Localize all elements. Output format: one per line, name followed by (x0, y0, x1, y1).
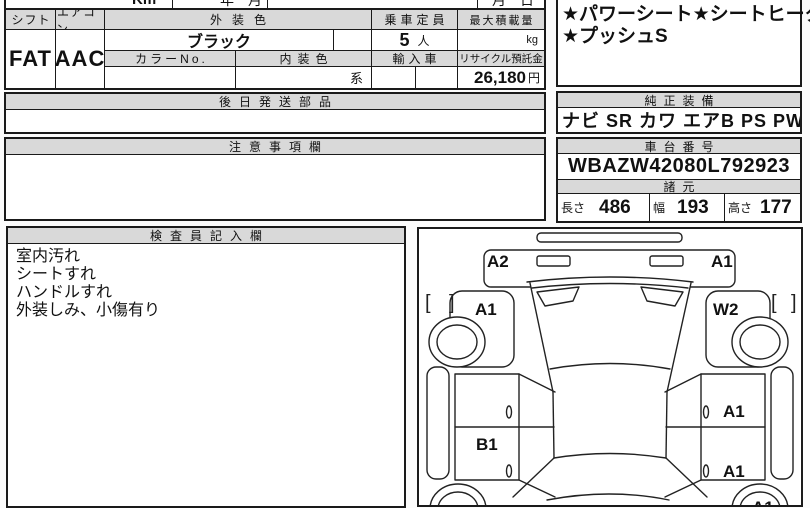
damage-label-wheel-front-right: A1 (752, 498, 774, 505)
damage-label-rear-right: A1 (711, 252, 733, 271)
bracket-icon: ] (449, 292, 455, 314)
recycle-fee-value-cell: 26,180 円 (458, 67, 544, 88)
bracket-icon: [ (771, 292, 777, 314)
length-cell: 長さ 486 (558, 194, 650, 221)
bracket-icon: ] (791, 292, 797, 314)
capacity-value: 5 (399, 30, 409, 51)
damage-diagram-section: [ ] [ ] A2 A1 A1 W2 A1 B1 A1 A1 (417, 227, 803, 507)
damage-label-rear-left: A2 (487, 252, 509, 271)
import-car-header: 輸入車 (372, 51, 458, 67)
side-sill-left (427, 367, 449, 479)
inspector-section: 検査員記入欄 室内汚れ シートすれ ハンドルすれ 外装しみ、小傷有り (6, 226, 406, 508)
top-strip-divider (267, 0, 268, 8)
sales-point: ★パワーシート★シートヒーター (562, 4, 796, 26)
notes-header: 注意事項欄 (6, 139, 544, 155)
equipment-section: 純正装備 ナビ SR カワ エアB PS PW (556, 91, 802, 134)
recycle-fee-value: 26,180 (474, 68, 526, 88)
notes-section: 注意事項欄 (4, 137, 546, 221)
roof-side-left (553, 392, 554, 458)
chassis-header: 車台番号 (558, 139, 800, 154)
inspector-note: 外装しみ、小傷有り (16, 302, 396, 320)
length-value: 486 (599, 197, 631, 219)
width-cell: 幅 193 (650, 194, 725, 221)
top-strip: Km 年 月 月 日 (4, 0, 546, 8)
height-cell: 高さ 177 (725, 194, 800, 221)
import-car-cell-2 (416, 67, 458, 88)
capacity-header: 乗車定員 (372, 10, 458, 30)
max-load-value-cell: kg (458, 30, 544, 51)
side-sill-right (771, 367, 793, 479)
chassis-number: WBAZW42080L792923 (558, 154, 800, 180)
height-label: 高さ (728, 199, 752, 216)
shift-value: FAT (6, 30, 56, 88)
door-handle (704, 406, 709, 418)
inspector-header: 検査員記入欄 (8, 228, 404, 244)
damage-label-door-right-rear: A1 (723, 402, 745, 421)
max-load-unit: kg (526, 34, 538, 46)
notes-body (6, 155, 544, 219)
import-car-cell-1 (372, 67, 416, 88)
door-handle (704, 465, 709, 477)
capacity-unit: 人 (418, 32, 430, 49)
top-strip-divider (477, 0, 478, 8)
month-fragment: 月 (248, 0, 262, 8)
interior-color-header: 内装色 (236, 51, 372, 67)
color-no-header: カラーNo. (105, 51, 236, 67)
day-fragment: 日 (520, 0, 534, 8)
aircon-value: AAC (56, 30, 105, 88)
inspector-note: ハンドルすれ (16, 284, 396, 302)
car-damage-diagram: [ ] [ ] A2 A1 A1 W2 A1 B1 A1 A1 (419, 229, 801, 505)
shift-header: シフト (6, 10, 56, 30)
recycle-fee-header: リサイクル預託金 (458, 51, 544, 67)
inspector-body: 室内汚れ シートすれ ハンドルすれ 外装しみ、小傷有り (8, 244, 404, 504)
door-handle (507, 465, 512, 477)
odometer-unit-fragment: Km (132, 0, 156, 8)
rear-light-left (537, 256, 570, 266)
top-strip-divider (172, 0, 173, 8)
sales-points-body: ★パワーシート★シートヒーター ★プッシュS (558, 2, 800, 50)
width-value: 193 (677, 197, 709, 219)
later-parts-body (6, 110, 544, 132)
damage-label-door-left-front: B1 (476, 435, 498, 454)
height-value: 177 (760, 197, 792, 219)
interior-color-value-cell: 系 (236, 67, 372, 88)
max-load-header: 最大積載量 (458, 10, 544, 30)
year-fragment: 年 (220, 0, 234, 8)
equipment-value: ナビ SR カワ エアB PS PW (558, 108, 800, 132)
car-body (513, 278, 707, 506)
wheel-front-left (430, 484, 486, 505)
inspector-note: 室内汚れ (16, 248, 396, 266)
dimensions-header: 諸元 (558, 180, 800, 194)
rear-bumper (537, 233, 682, 242)
later-parts-section: 後日発送部品 (4, 92, 546, 134)
door-handle (507, 406, 512, 418)
equipment-header: 純正装備 (558, 93, 800, 108)
chassis-section: 車台番号 WBAZW42080L792923 諸元 長さ 486 幅 193 高… (556, 137, 802, 223)
exterior-color-header: 外装色 (105, 10, 372, 30)
recycle-fee-unit: 円 (528, 69, 540, 86)
damage-label-quarter-right: W2 (713, 300, 739, 319)
damage-label-door-right-front: A1 (723, 462, 745, 481)
capacity-value-cell: 5 人 (372, 30, 458, 51)
exterior-color-code-cell (334, 30, 372, 51)
interior-color-suffix: 系 (350, 68, 363, 87)
length-label: 長さ (561, 199, 585, 216)
sales-point: ★プッシュS (562, 26, 796, 48)
width-label: 幅 (653, 199, 665, 216)
inspector-note: シートすれ (16, 266, 396, 284)
damage-label-quarter-left: A1 (475, 300, 497, 319)
rear-light-right (650, 256, 683, 266)
bracket-icon: [ (425, 292, 431, 314)
exterior-color-value: ブラック (105, 30, 334, 51)
spec-table: シフト エアコン 外装色 乗車定員 最大積載量 FAT AAC ブラック 5 人… (4, 8, 546, 90)
later-parts-header: 後日発送部品 (6, 94, 544, 110)
color-no-value-cell (105, 67, 236, 88)
sales-points-section: ★パワーシート★シートヒーター ★プッシュS (556, 0, 802, 87)
auction-sheet: { "colors": {"header_bg": "#d9d9d9", "bo… (0, 0, 810, 500)
aircon-header: エアコン (56, 10, 105, 30)
month-fragment: 月 (492, 0, 506, 8)
roof-side-right (666, 392, 667, 458)
